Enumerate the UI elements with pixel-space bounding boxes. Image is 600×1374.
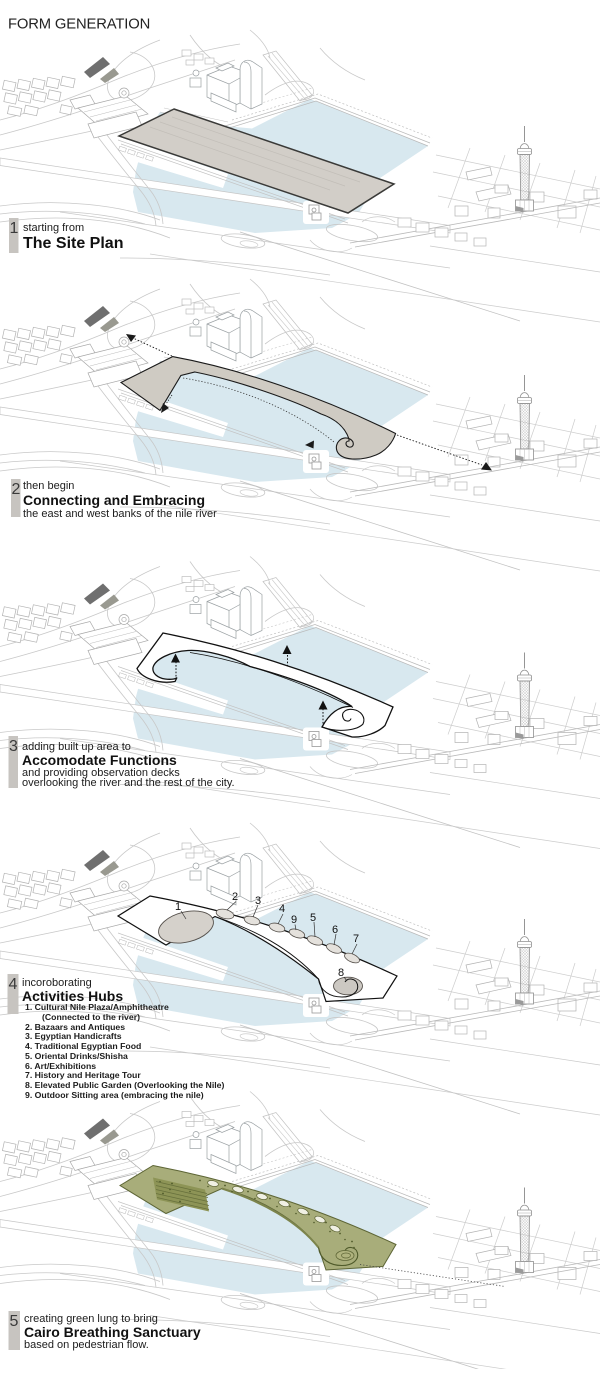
svg-text:Accomodate Functions: Accomodate Functions [22,752,177,768]
svg-text:5. Oriental Drinks/Shisha: 5. Oriental Drinks/Shisha [25,1051,128,1061]
svg-text:Connecting and Embracing: Connecting and Embracing [23,492,205,508]
svg-text:8. Elevated Public Garden (Ove: 8. Elevated Public Garden (Overlooking t… [25,1080,224,1090]
svg-text:6: 6 [332,924,338,936]
svg-text:5: 5 [10,1313,19,1330]
svg-text:then begin: then begin [23,480,74,492]
svg-text:3: 3 [255,895,261,907]
svg-text:4: 4 [279,903,285,915]
svg-text:based on pedestrian flow.: based on pedestrian flow. [24,1339,149,1351]
svg-text:2: 2 [12,481,21,498]
svg-text:4. Traditional Egyptian Food: 4. Traditional Egyptian Food [25,1041,141,1051]
svg-text:5: 5 [310,912,316,924]
svg-text:3. Egyptian Handicrafts: 3. Egyptian Handicrafts [25,1031,122,1041]
svg-text:9: 9 [291,914,297,926]
svg-text:Cairo Breathing Sanctuary: Cairo Breathing Sanctuary [24,1324,201,1340]
svg-text:3: 3 [9,738,18,755]
svg-text:(Connected to the river): (Connected to the river) [42,1012,140,1022]
svg-text:The Site Plan: The Site Plan [23,235,123,252]
svg-text:starting from: starting from [23,222,84,234]
svg-text:1. Cultural Nile Plaza/Amphith: 1. Cultural Nile Plaza/Amphitheatre [25,1002,169,1012]
svg-text:7. History and Heritage Tour: 7. History and Heritage Tour [25,1070,141,1080]
svg-text:the east and west banks of the: the east and west banks of the nile rive… [23,508,217,520]
svg-text:1: 1 [175,901,181,913]
svg-text:1: 1 [10,220,19,237]
svg-text:FORM GENERATION: FORM GENERATION [8,17,150,33]
svg-text:8: 8 [338,967,344,979]
svg-text:overlooking the river and the: overlooking the river and the rest of th… [22,777,235,789]
svg-text:4: 4 [9,976,18,993]
svg-text:2: 2 [232,891,238,903]
svg-text:9. Outdoor Sitting area (embra: 9. Outdoor Sitting area (embracing the n… [25,1090,204,1100]
svg-text:7: 7 [353,933,359,945]
